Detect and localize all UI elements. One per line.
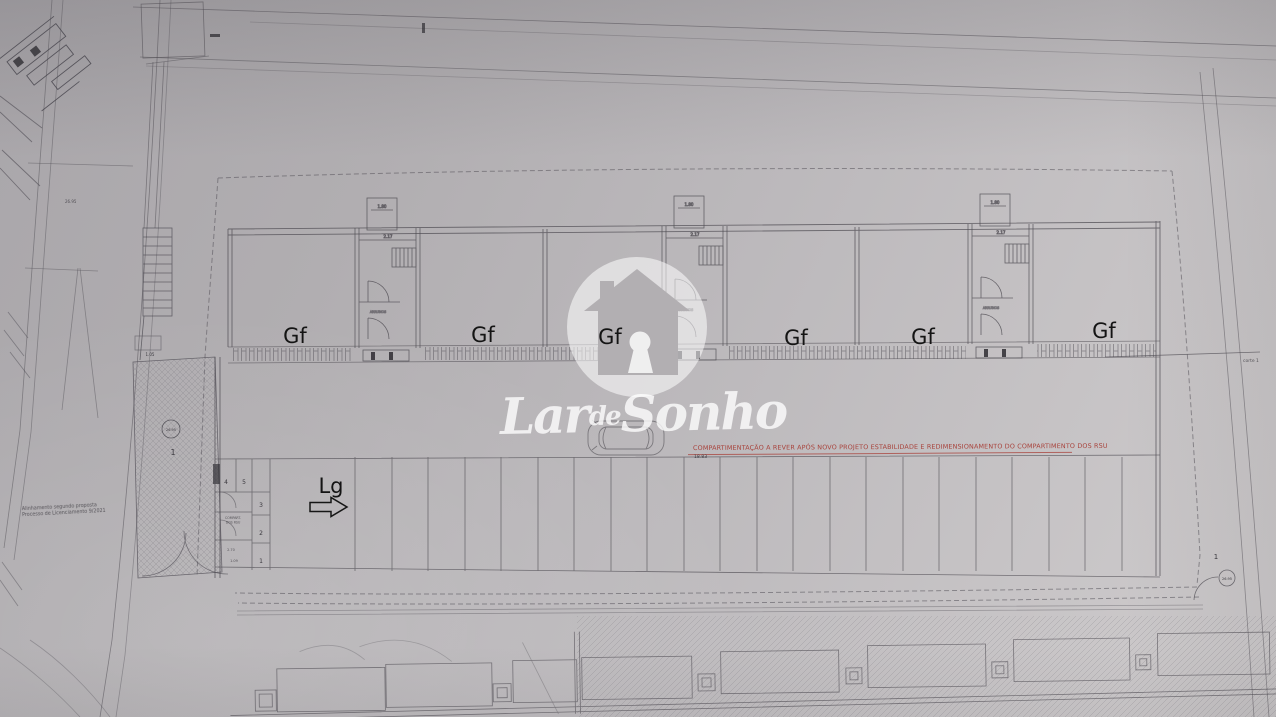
garage-label-6: Gf [1092, 319, 1116, 343]
garage-label-4: Gf [784, 326, 808, 350]
brand-word-sonho: Sonho [620, 381, 787, 443]
yard-dimension: 18.83 [694, 455, 707, 460]
right-arrow-icon [309, 496, 349, 518]
garage-label-5: Gf [911, 325, 935, 349]
watermark [0, 0, 1276, 717]
brand-word-de: de [589, 401, 620, 432]
brand-word-lar: Lar [499, 385, 588, 446]
garage-label-3: Gf [598, 325, 622, 349]
watermark-brand: LardeSonho [497, 381, 788, 446]
plan-photo: 26.95 26.95 1 1.05 [0, 0, 1276, 717]
garage-label-lg: Lg [318, 474, 343, 498]
house-keyhole-icon [567, 257, 707, 397]
garage-label-2: Gf [471, 323, 495, 347]
garage-label-1: Gf [283, 324, 307, 348]
